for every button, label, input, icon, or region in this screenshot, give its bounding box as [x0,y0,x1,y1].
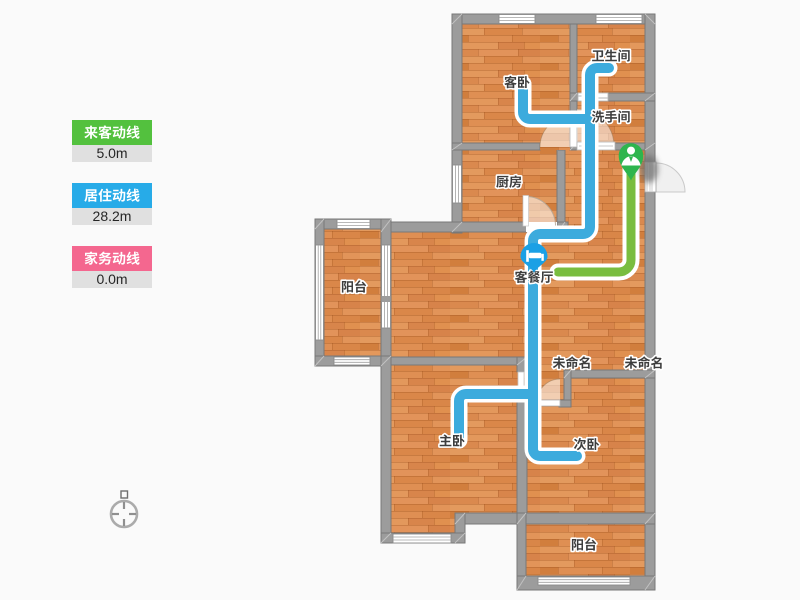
svg-text:28.2m: 28.2m [93,208,132,224]
svg-text:0.0m: 0.0m [96,271,127,287]
svg-text:5.0m: 5.0m [96,145,127,161]
